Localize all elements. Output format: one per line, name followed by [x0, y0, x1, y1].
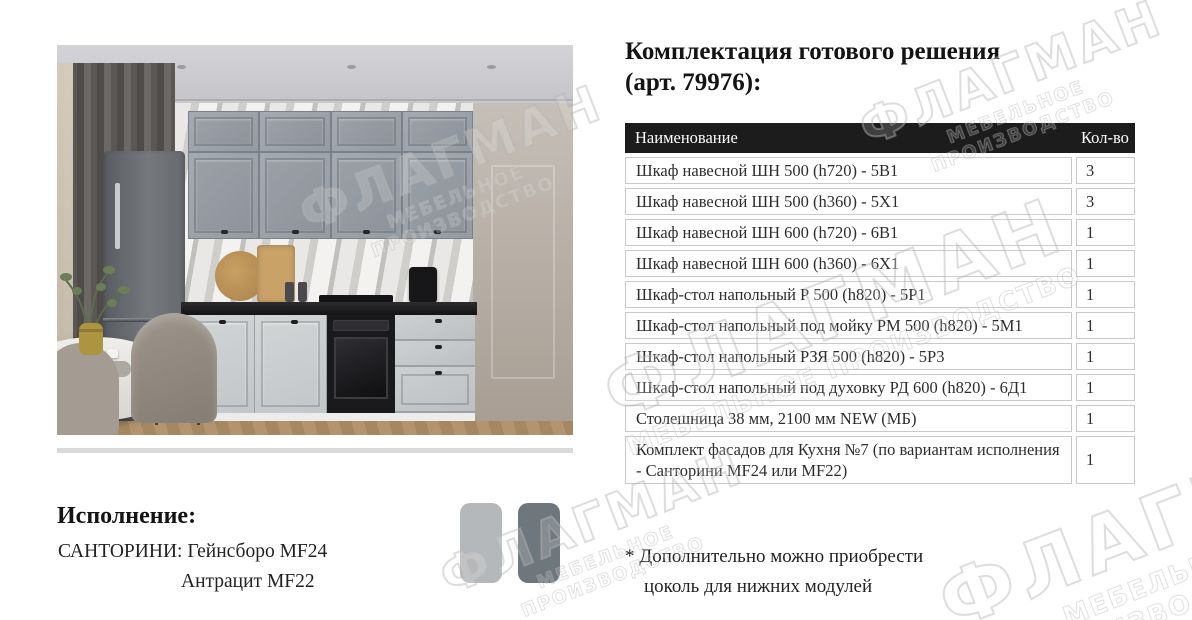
footnote-line2: цоколь для нижних модулей [644, 576, 872, 598]
item-name: Шкаф навесной ШН 500 (h360) - 5Х1 [625, 188, 1072, 215]
item-qty: 1 [1076, 250, 1135, 277]
photo-cabinet-door [260, 153, 329, 238]
finish-series-line: САНТОРИНИ: Гейнсборо MF24 [58, 541, 327, 563]
photo-plant [57, 257, 133, 361]
table-row: Шкаф навесной ШН 600 (h720) - 6В1 1 [625, 219, 1135, 246]
photo-cabinet-door [260, 112, 329, 151]
photo-oven [327, 315, 395, 413]
photo-fridge-handle [115, 183, 120, 249]
page-title-line1: Комплектация готового решения [625, 36, 1095, 67]
finish-heading: Исполнение: [57, 503, 196, 530]
item-qty: 1 [1076, 343, 1135, 370]
photo-spotlight [177, 65, 186, 69]
item-qty: 3 [1076, 157, 1135, 184]
table-row: Шкаф-стол напольный Р 500 (h820) - 5Р1 1 [625, 281, 1135, 308]
photo-spotlight [487, 65, 496, 69]
table-row: Столешница 38 мм, 2100 мм NEW (МБ) 1 [625, 405, 1135, 432]
photo-chair [131, 313, 217, 423]
product-sheet: Комплектация готового решения (арт. 7997… [0, 0, 1192, 620]
page-title-line2: (арт. 79976): [625, 67, 1095, 98]
photo-floor [57, 421, 573, 435]
photo-countertop [181, 302, 477, 315]
photo-cabinet-door [332, 112, 401, 151]
photo-cabinet-door [332, 153, 401, 238]
photo-cabinet-door [189, 153, 258, 238]
photo-right-wall [473, 103, 573, 421]
item-name: Шкаф-стол напольный РЗЯ 500 (h820) - 5Р3 [625, 343, 1072, 370]
item-qty: 1 [1076, 374, 1135, 401]
page-title: Комплектация готового решения (арт. 7997… [625, 36, 1095, 98]
item-name: Шкаф навесной ШН 600 (h720) - 6В1 [625, 219, 1072, 246]
item-name: Шкаф навесной ШН 500 (h720) - 5В1 [625, 157, 1072, 184]
finish-second-line: Антрацит MF22 [181, 571, 315, 593]
item-qty: 1 [1076, 281, 1135, 308]
table-row: Шкаф-стол напольный РЗЯ 500 (h820) - 5Р3… [625, 343, 1135, 370]
photo-plinth [183, 413, 475, 421]
photo-drawer [395, 367, 475, 413]
photo-wall-molding [491, 165, 555, 379]
header-name: Наименование [625, 128, 1072, 148]
photo-goblet [285, 282, 294, 302]
photo-drawer-unit [395, 315, 475, 413]
photo-cabinet-door [189, 112, 258, 151]
item-name: Столешница 38 мм, 2100 мм NEW (МБ) [625, 405, 1072, 432]
swatch-anthracite-mf22 [518, 503, 560, 583]
photo-coffee-machine [409, 267, 437, 303]
footnote-line1: * Дополнительно можно приобрести [625, 546, 923, 568]
table-header: Наименование Кол-во [625, 123, 1135, 153]
table-row: Шкаф-стол напольный под духовку РД 600 (… [625, 374, 1135, 401]
components-table: Наименование Кол-во Шкаф навесной ШН 500… [625, 123, 1135, 484]
item-qty: 3 [1076, 188, 1135, 215]
photo-cabinet-door [403, 112, 472, 151]
item-name: Шкаф-стол напольный под духовку РД 600 (… [625, 374, 1072, 401]
table-row: Шкаф навесной ШН 500 (h720) - 5В1 3 [625, 157, 1135, 184]
photo-oven-door [334, 337, 388, 399]
photo-wall-cabinets [188, 111, 473, 239]
item-name: Шкаф-стол напольный Р 500 (h820) - 5Р1 [625, 281, 1072, 308]
photo-drawer [395, 341, 475, 367]
header-qty: Кол-во [1072, 128, 1135, 148]
table-row: Шкаф навесной ШН 600 (h360) - 6Х1 1 [625, 250, 1135, 277]
photo-spotlight [347, 65, 356, 69]
watermark-subtitle-text: МЕБЕЛЬНОЕ ПРОИЗВОДСТВО [957, 493, 1192, 620]
item-qty: 1 [1076, 405, 1135, 432]
table-body: Шкаф навесной ШН 500 (h720) - 5В1 3 Шкаф… [625, 157, 1135, 484]
photo-drawer [395, 315, 475, 341]
photo-base-door [255, 315, 327, 413]
table-row: Шкаф навесной ШН 500 (h360) - 5Х1 3 [625, 188, 1135, 215]
table-row: Комплект фасадов для Кухня №7 (по вариан… [625, 436, 1135, 484]
item-name: Комплект фасадов для Кухня №7 (по вариан… [625, 436, 1072, 484]
item-qty: 1 [1076, 219, 1135, 246]
item-qty: 1 [1076, 436, 1135, 484]
table-row: Шкаф-стол напольный под мойку РМ 500 (h8… [625, 312, 1135, 339]
item-qty: 1 [1076, 312, 1135, 339]
item-name: Шкаф-стол напольный под мойку РМ 500 (h8… [625, 312, 1072, 339]
photo-oven-panel [333, 320, 389, 331]
photo-cabinet-door [403, 153, 472, 238]
photo-base-cabinets [183, 315, 475, 413]
photo-goblet [298, 282, 307, 302]
swatch-gainsboro-mf24 [460, 503, 502, 583]
kitchen-photo [57, 45, 573, 435]
section-divider [57, 448, 573, 453]
item-name: Шкаф навесной ШН 600 (h360) - 6Х1 [625, 250, 1072, 277]
